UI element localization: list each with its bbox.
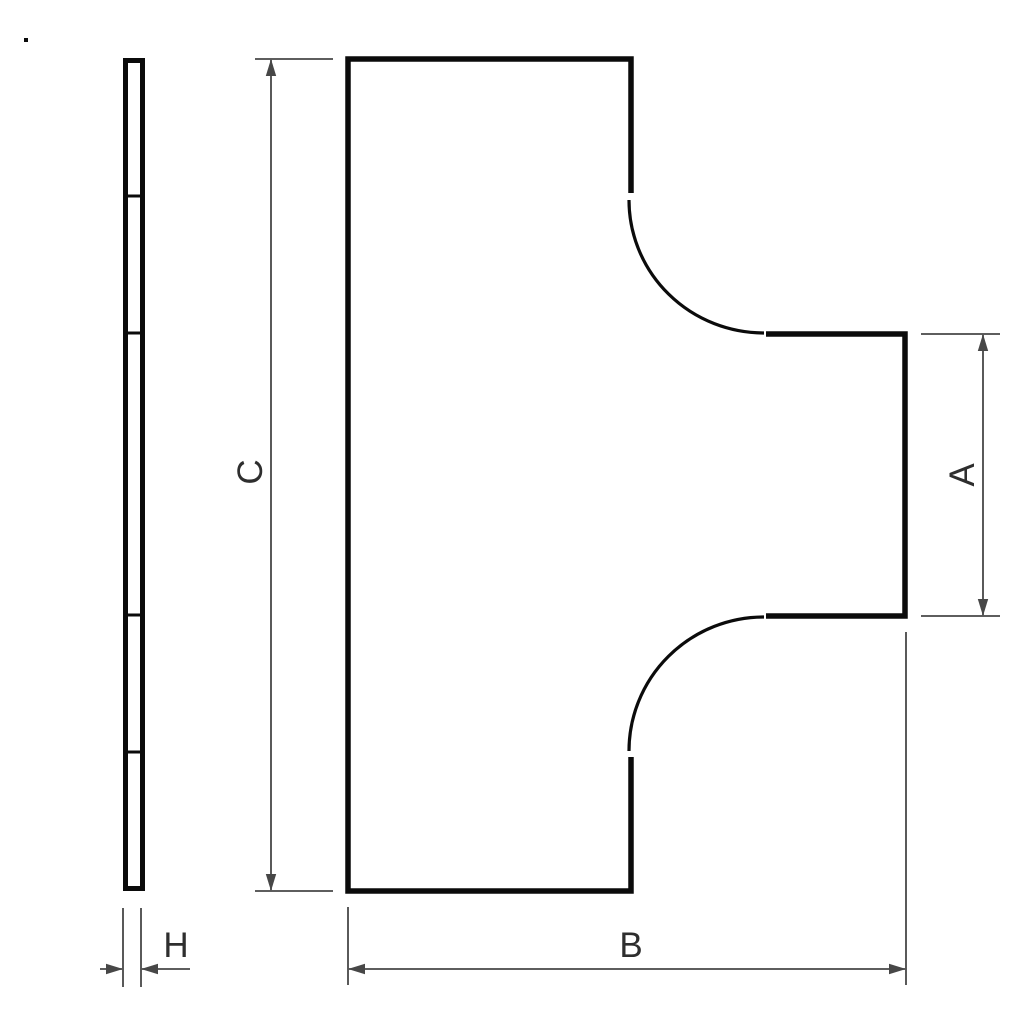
tee-body-outline — [348, 59, 631, 891]
lower-fillet-arc — [629, 617, 764, 751]
side-view-outline — [126, 61, 143, 889]
dimension-c: C — [231, 59, 333, 891]
dim-label-a: A — [943, 463, 982, 487]
arrowhead-up-icon — [266, 59, 276, 76]
arrowhead-up-icon — [978, 334, 988, 351]
tee-front-view — [348, 59, 905, 891]
dim-label-b: B — [619, 926, 642, 965]
stray-dot — [24, 38, 28, 42]
side-view — [123, 61, 145, 889]
upper-fillet-arc — [629, 200, 764, 333]
dim-label-c: C — [231, 459, 270, 484]
arrowhead-right-icon — [106, 964, 123, 974]
arrowhead-down-icon — [266, 874, 276, 891]
dim-label-h: H — [163, 926, 188, 965]
dimension-a: A — [921, 334, 1000, 616]
dimension-b: B — [348, 632, 906, 985]
arrowhead-right-icon — [889, 964, 906, 974]
technical-drawing-canvas: C A B H — [0, 0, 1024, 1024]
dimension-h: H — [100, 908, 190, 987]
arrowhead-down-icon — [978, 599, 988, 616]
tee-branch-outline — [766, 334, 905, 616]
arrowhead-left-icon — [348, 964, 365, 974]
arrowhead-left-icon — [141, 964, 158, 974]
